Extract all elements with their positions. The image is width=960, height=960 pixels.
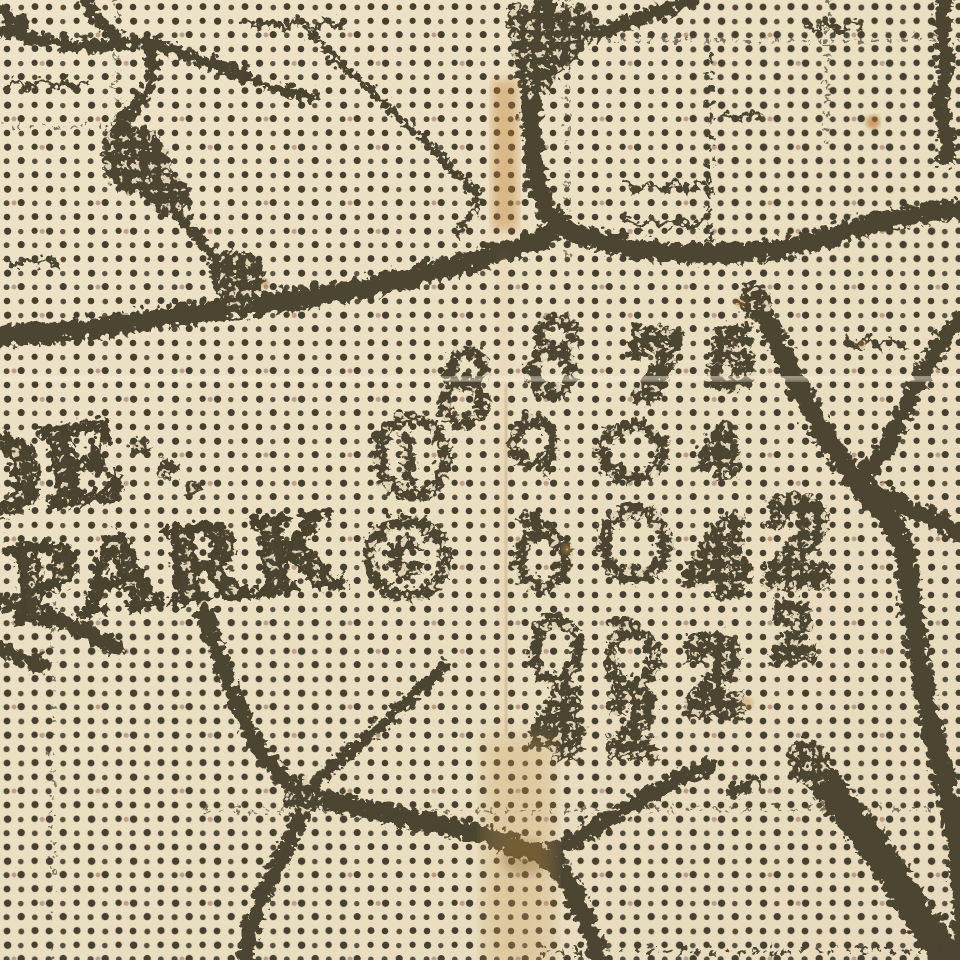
svg-text:2: 2 <box>683 609 738 731</box>
svg-text:4: 4 <box>687 491 742 613</box>
svg-text:5: 5 <box>707 307 749 400</box>
svg-text:2: 2 <box>769 584 809 672</box>
svg-text:7: 7 <box>627 307 675 414</box>
svg-text:4: 4 <box>698 408 732 484</box>
